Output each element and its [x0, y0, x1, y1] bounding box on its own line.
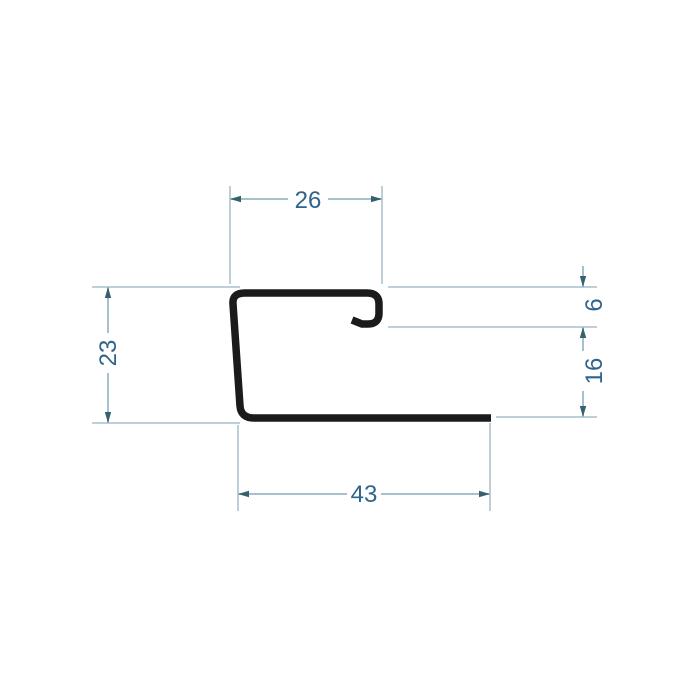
dimension-top-flange-width: 26	[230, 186, 382, 284]
dim-label-top-flange-width: 26	[295, 187, 322, 214]
dimension-hook-return-depth: 6	[388, 266, 608, 327]
drawing-canvas: 26 23 6 16	[0, 0, 700, 700]
profile-outline	[233, 293, 491, 418]
arrowhead-right-icon	[371, 196, 382, 202]
dimension-bottom-flange-width: 43	[238, 423, 490, 511]
arrowhead-left-icon	[238, 491, 249, 497]
arrowhead-right-icon	[479, 491, 490, 497]
dim-label-hook-return-depth: 6	[581, 298, 608, 311]
dimension-opening-height: 16	[496, 327, 608, 417]
technical-drawing: 26 23 6 16	[0, 0, 700, 700]
arrowhead-up-icon	[580, 327, 586, 338]
dim-label-opening-height: 16	[581, 358, 608, 385]
arrowhead-up-icon	[105, 287, 111, 298]
dim-label-profile-height: 23	[95, 340, 122, 367]
arrowhead-down-icon	[580, 276, 586, 287]
arrowhead-down-icon	[580, 406, 586, 417]
arrowhead-down-icon	[105, 412, 111, 423]
dimension-profile-height: 23	[92, 287, 240, 423]
arrowhead-left-icon	[230, 196, 241, 202]
dim-label-bottom-flange-width: 43	[351, 481, 378, 508]
